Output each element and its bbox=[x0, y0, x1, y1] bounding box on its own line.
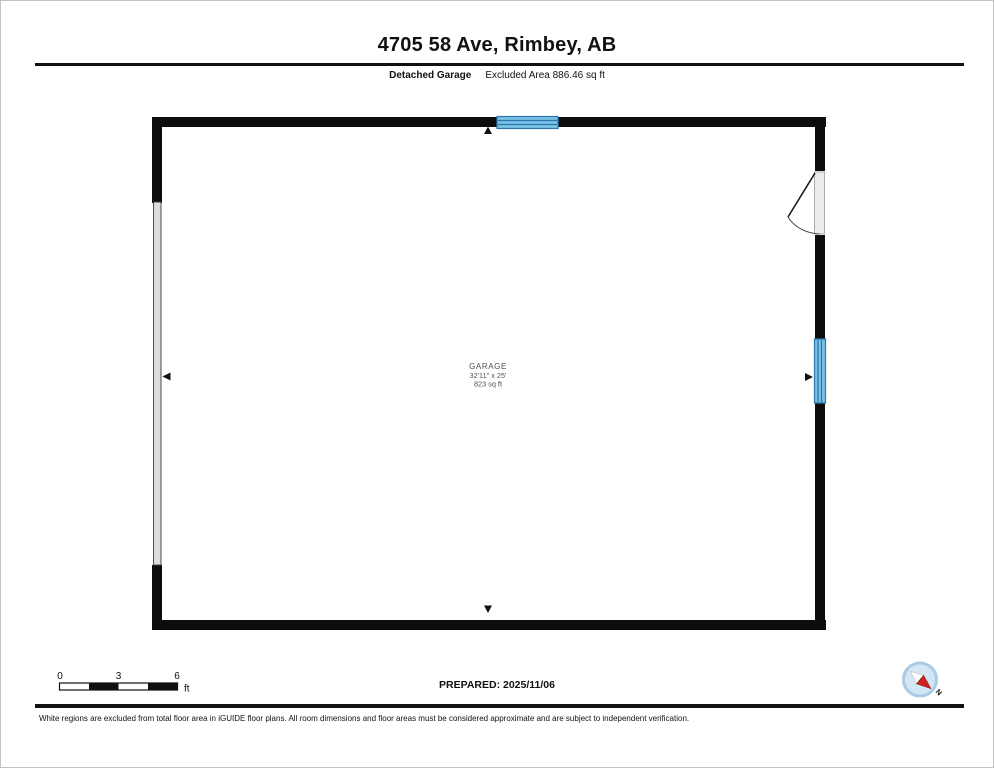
door-leaf bbox=[815, 172, 825, 234]
room-label-garage: GARAGE 32'11" x 25' 823 sq ft bbox=[469, 362, 507, 389]
floorplan-drawing: GARAGE 32'11" x 25' 823 sq ft 0 3 6 ft N bbox=[1, 1, 994, 768]
arrow-up-icon bbox=[484, 127, 492, 135]
window-right-glass bbox=[815, 339, 826, 403]
window-top bbox=[497, 117, 558, 129]
wall-left-lower-segment bbox=[152, 565, 162, 630]
door-right bbox=[788, 172, 825, 234]
prepared-date: PREPARED: 2025/11/06 bbox=[1, 679, 993, 691]
disclaimer-text: White regions are excluded from total fl… bbox=[39, 714, 939, 723]
arrow-right-icon bbox=[805, 373, 813, 381]
wall-left-upper-segment bbox=[152, 117, 162, 203]
floorplan-page: 4705 58 Ave, Rimbey, AB Detached GarageE… bbox=[0, 0, 994, 768]
door-open-line bbox=[788, 173, 815, 217]
room-area: 823 sq ft bbox=[474, 380, 502, 389]
wall-top-right-segment bbox=[558, 117, 826, 127]
footer-divider bbox=[35, 704, 964, 708]
garage-door-panel bbox=[154, 202, 162, 565]
wall-right-lower-segment bbox=[815, 403, 825, 630]
wall-right-upper-segment bbox=[815, 117, 825, 171]
wall-top-left-segment bbox=[152, 117, 497, 127]
arrow-down-icon bbox=[484, 606, 492, 614]
wall-right-mid-segment bbox=[815, 235, 825, 339]
window-top-glass bbox=[497, 117, 558, 129]
wall-bottom bbox=[152, 620, 826, 630]
arrow-left-icon bbox=[163, 373, 171, 381]
room-name: GARAGE bbox=[469, 362, 507, 371]
window-right bbox=[815, 339, 826, 403]
